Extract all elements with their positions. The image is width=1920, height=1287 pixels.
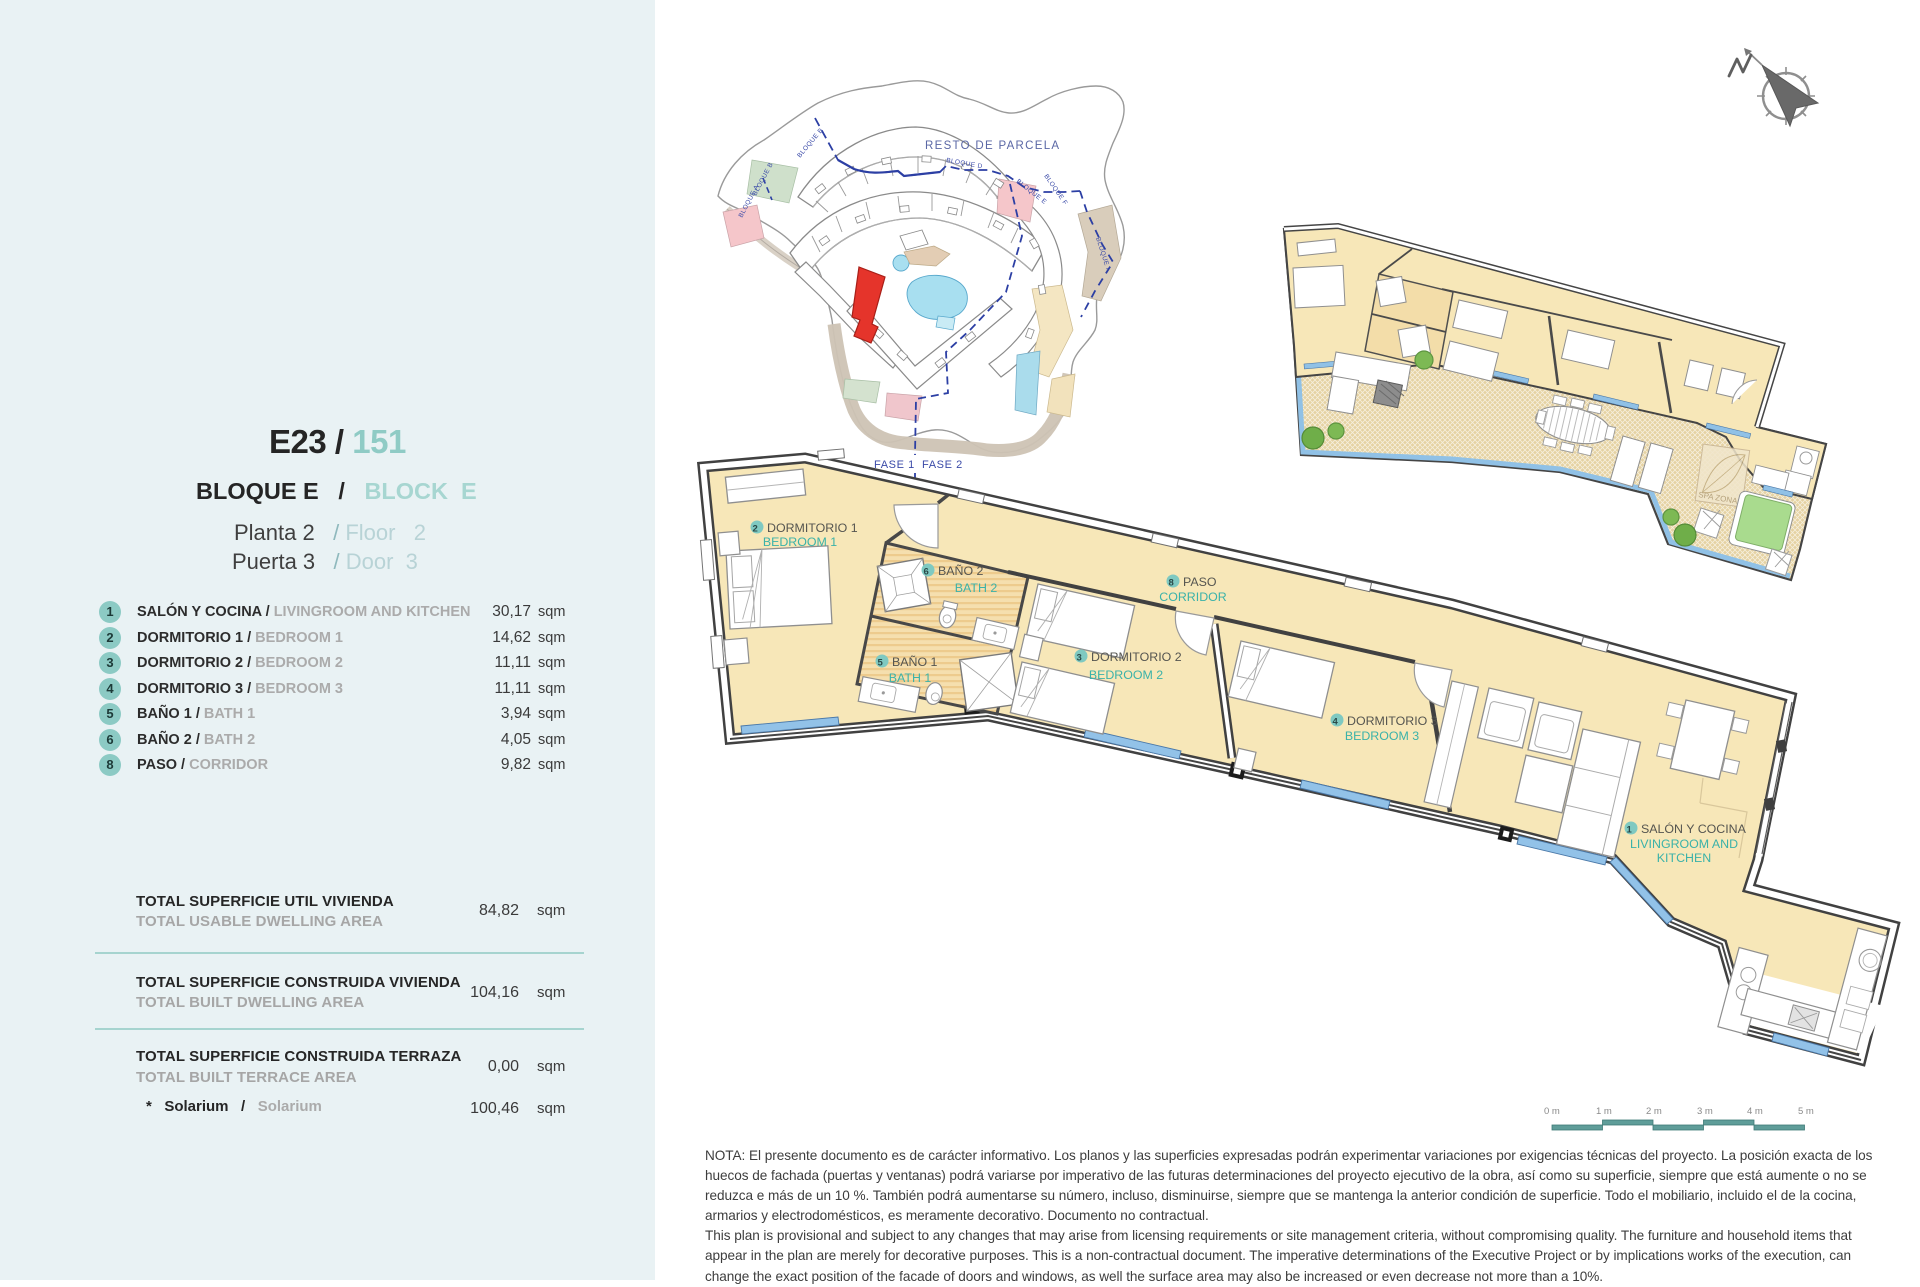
svg-text:1 m: 1 m: [1596, 1106, 1612, 1117]
svg-text:DORMITORIO 2: DORMITORIO 2: [1091, 650, 1182, 664]
svg-text:DORMITORIO 1: DORMITORIO 1: [767, 521, 858, 535]
svg-text:BATH 1: BATH 1: [889, 671, 932, 685]
svg-text:3 m: 3 m: [1697, 1106, 1713, 1117]
svg-text:FASE 1: FASE 1: [874, 459, 915, 471]
svg-text:8: 8: [1169, 578, 1174, 589]
svg-text:PASO: PASO: [1183, 575, 1217, 589]
svg-text:5 m: 5 m: [1798, 1106, 1814, 1117]
svg-text:5: 5: [878, 658, 884, 669]
svg-text:4: 4: [1333, 717, 1339, 728]
svg-text:LIVINGROOM AND: LIVINGROOM AND: [1630, 837, 1738, 851]
svg-text:BAÑO 2: BAÑO 2: [938, 564, 984, 578]
svg-text:BAÑO 1: BAÑO 1: [892, 655, 938, 669]
svg-text:2 m: 2 m: [1646, 1106, 1662, 1117]
svg-text:4 m: 4 m: [1747, 1106, 1763, 1117]
svg-text:FASE 2: FASE 2: [922, 459, 963, 471]
svg-text:6: 6: [924, 567, 929, 578]
svg-text:SALÓN Y COCINA: SALÓN Y COCINA: [1641, 821, 1747, 836]
svg-text:CORRIDOR: CORRIDOR: [1159, 590, 1227, 604]
svg-text:BEDROOM 3: BEDROOM 3: [1345, 729, 1419, 743]
svg-text:2: 2: [753, 524, 758, 535]
svg-text:0 m: 0 m: [1544, 1106, 1560, 1117]
svg-text:3: 3: [1077, 653, 1082, 664]
svg-text:1: 1: [1627, 825, 1633, 836]
svg-text:KITCHEN: KITCHEN: [1657, 851, 1711, 865]
svg-text:DORMITORIO 3: DORMITORIO 3: [1347, 714, 1438, 728]
svg-text:RESTO DE PARCELA: RESTO DE PARCELA: [925, 140, 1060, 152]
svg-text:BEDROOM 2: BEDROOM 2: [1089, 668, 1163, 682]
svg-text:BEDROOM 1: BEDROOM 1: [763, 535, 837, 549]
svg-text:BATH 2: BATH 2: [955, 581, 998, 595]
